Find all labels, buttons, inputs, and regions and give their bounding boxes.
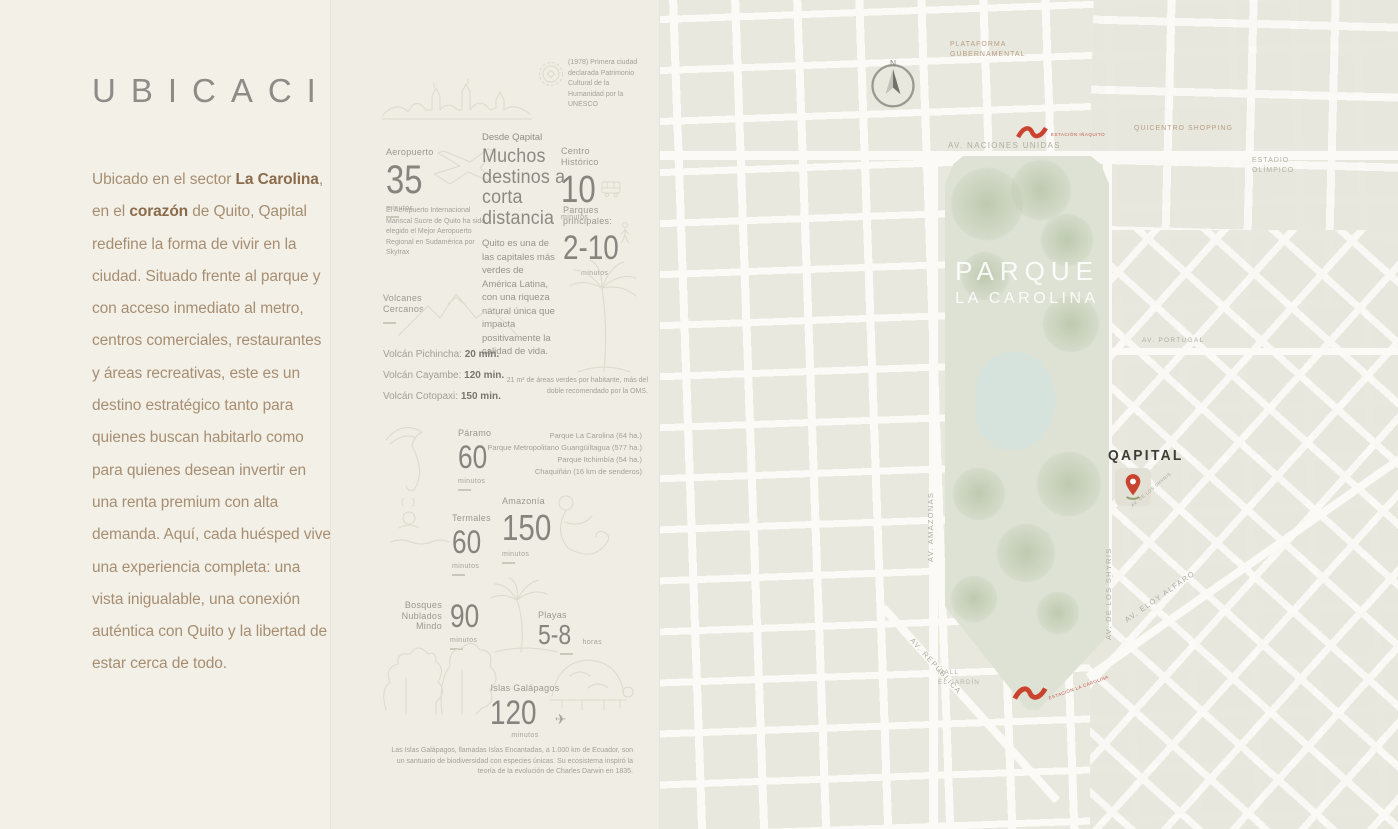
- plane-glyph-icon: ✈: [555, 711, 567, 727]
- street-label-amazonas: AV. AMAZONAS: [926, 462, 935, 562]
- centro-historico-label: Centro Histórico: [561, 146, 613, 167]
- park-pond: [975, 352, 1055, 450]
- poi-mall-el-jardin: MALL EL JARDÍN: [938, 668, 980, 687]
- infographic-panel: (1978) Primera ciudad declarada Patrimon…: [330, 0, 660, 829]
- playas-value: 5-8: [538, 621, 571, 649]
- volcano-row: Volcán Pichincha: 20 min.: [383, 344, 504, 365]
- tree-blob: [1037, 592, 1079, 634]
- poi-plataforma: PLATAFORMA GUBERNAMENTAL: [950, 40, 1026, 59]
- paramo-unit: minutos: [458, 478, 494, 485]
- divider-dash: [458, 489, 471, 491]
- playas-unit: horas: [582, 639, 602, 646]
- palm-tree-icon: [558, 256, 650, 374]
- street-label-portugal: AV. PORTUGAL: [1142, 337, 1204, 344]
- airport-label: Aeropuerto: [386, 147, 434, 158]
- volcano-times: Volcán Pichincha: 20 min. Volcán Cayambe…: [383, 344, 504, 407]
- volcano-name: Volcán Cotopaxi:: [383, 391, 458, 402]
- bus-icon: [600, 180, 622, 198]
- street-label-shyris: AV. DE LOS SHYRIS: [1104, 520, 1113, 640]
- map-panel: PARQUE LA CAROLINA N PLATAFORMA GUBERNAM…: [660, 0, 1398, 829]
- walking-person-icon: [618, 222, 632, 246]
- tree-blob: [951, 576, 997, 622]
- parque-la-carolina: PARQUE LA CAROLINA: [945, 156, 1109, 712]
- city-grid-diagonal-wrap: [1090, 230, 1398, 829]
- volcano-row: Volcán Cayambe: 120 min.: [383, 365, 504, 386]
- green-area-note: 21 m² de áreas verdes por habitante, más…: [500, 376, 648, 397]
- paramo-stat: Páramo 60 minutos: [458, 428, 494, 491]
- poi-quicentro: QUICENTRO SHOPPING: [1134, 124, 1233, 134]
- hot-springs-icon: [385, 498, 453, 556]
- termales-stat: Termales 60 minutos: [452, 513, 491, 576]
- highlight-corazon: corazón: [129, 203, 188, 220]
- qapital-logo: QAPITAL: [1108, 447, 1184, 464]
- paramo-value: 60: [458, 441, 487, 473]
- volcano-name: Volcán Pichincha:: [383, 349, 462, 360]
- galapagos-stat: Islas Galápagos 120✈ minutos: [490, 683, 560, 739]
- location-paragraph: Ubicado en el sector La Carolina, en el …: [92, 164, 332, 681]
- paragraph-segment: de Quito, Qapital redefine la forma de v…: [92, 203, 331, 672]
- bosques-value: 90: [450, 600, 479, 632]
- galapagos-footnote: Las Islas Galápagos, llamadas Islas Enca…: [388, 746, 633, 778]
- termales-value: 60: [452, 526, 481, 558]
- unesco-note: (1978) Primera ciudad declarada Patrimon…: [568, 58, 640, 111]
- centro-historico-value: 10: [561, 171, 596, 209]
- tree-blob: [953, 468, 1005, 520]
- street-label-naciones-unidas: AV. NACIONES UNIDAS: [948, 141, 1061, 150]
- divider-dash: [452, 574, 465, 576]
- paragraph-segment: Ubicado en el sector: [92, 171, 236, 188]
- galapagos-value: 120: [490, 696, 537, 730]
- quito-skyline-icon: [382, 70, 532, 122]
- highlight-la-carolina: La Carolina: [236, 171, 319, 188]
- park-title: PARQUE LA CAROLINA: [945, 256, 1109, 308]
- poi-mall-line1: MALL: [938, 668, 980, 678]
- airport-minutes-value: 35: [386, 160, 422, 200]
- bosques-label: Bosques Nublados Mindo: [380, 600, 442, 632]
- compass-rose: N: [865, 55, 921, 111]
- volcano-time: 120 min.: [464, 370, 504, 381]
- poi-mall-line2: EL JARDÍN: [938, 678, 980, 688]
- volcano-name: Volcán Cayambe:: [383, 370, 461, 381]
- tree-blob: [997, 524, 1055, 582]
- paramo-label: Páramo: [458, 428, 494, 439]
- airport-caption: El Aeropuerto Internacional Mariscal Suc…: [386, 206, 496, 259]
- monkey-icon: [542, 490, 626, 564]
- desde-qapital-label: Desde Qapital: [482, 132, 542, 143]
- volcano-time: 150 min.: [461, 391, 501, 402]
- park-title-line1: PARQUE: [945, 256, 1109, 287]
- location-text-panel: UBICACIÓN Ubicado en el sector La Caroli…: [0, 0, 330, 829]
- volcano-time: 20 min.: [465, 349, 499, 360]
- divider-dash: [502, 562, 515, 564]
- tree-blob: [1011, 160, 1071, 220]
- poi-plataforma-line2: GUBERNAMENTAL: [950, 50, 1026, 60]
- compass-n-label: N: [890, 58, 896, 68]
- volcano-icon: [398, 284, 518, 342]
- poi-plataforma-line1: PLATAFORMA: [950, 40, 1026, 50]
- condor-icon: [380, 418, 444, 494]
- brochure-page: UBICACIÓN Ubicado en el sector La Caroli…: [0, 0, 1398, 829]
- termales-label: Termales: [452, 513, 491, 524]
- metro-station-top-label: ESTACIÓN IÑAQUITO: [1051, 132, 1105, 137]
- termales-unit: minutos: [452, 563, 491, 570]
- metro-station-top: ESTACIÓN IÑAQUITO: [1015, 124, 1049, 142]
- unesco-badge-icon: [537, 60, 565, 88]
- park-title-line2: LA CAROLINA: [945, 290, 1109, 308]
- divider-dash: [383, 322, 396, 324]
- parques-label: Parques principales:: [563, 205, 619, 226]
- metro-station-bottom: ESTACIÓN LA CAROLINA: [1012, 684, 1048, 704]
- volcano-row: Volcán Cotopaxi: 150 min.: [383, 386, 504, 407]
- galapagos-label: Islas Galápagos: [490, 683, 560, 694]
- poi-estadio-line2: OLÍMPICO: [1252, 166, 1294, 176]
- galapagos-unit: minutos: [490, 732, 560, 739]
- road-portugal: [1110, 348, 1398, 355]
- poi-estadio-line1: ESTADIO: [1252, 156, 1294, 166]
- tree-blob: [1037, 452, 1101, 516]
- poi-estadio: ESTADIO OLÍMPICO: [1252, 156, 1294, 175]
- infographic-headline: Muchos destinos a corta distancia: [482, 147, 567, 229]
- city-grid-diagonal: [1090, 230, 1398, 829]
